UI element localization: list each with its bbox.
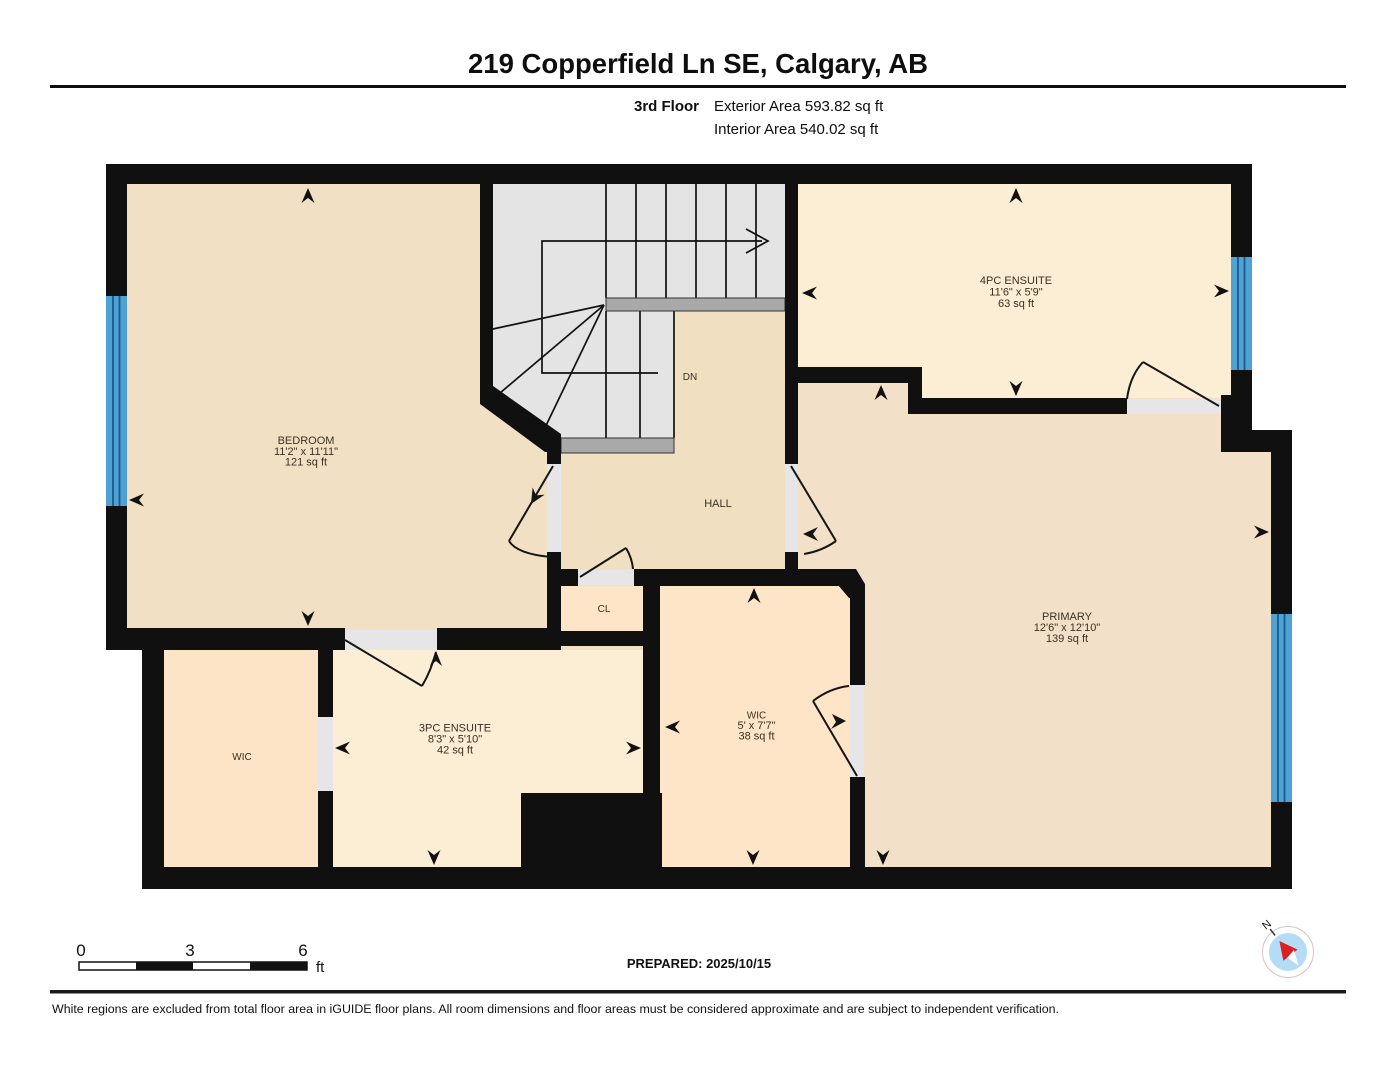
- svg-text:DN: DN: [683, 372, 697, 383]
- svg-text:139 sq ft: 139 sq ft: [1046, 633, 1088, 645]
- svg-text:42 sq ft: 42 sq ft: [437, 745, 473, 757]
- svg-text:0: 0: [76, 941, 85, 960]
- svg-text:63 sq ft: 63 sq ft: [998, 298, 1034, 310]
- svg-text:White regions are excluded fro: White regions are excluded from total fl…: [52, 1002, 1059, 1016]
- svg-text:WIC: WIC: [232, 752, 251, 763]
- svg-text:4PC ENSUITE: 4PC ENSUITE: [980, 275, 1052, 287]
- svg-text:HALL: HALL: [704, 498, 732, 510]
- svg-text:ft: ft: [316, 959, 325, 976]
- svg-text:38 sq ft: 38 sq ft: [738, 731, 774, 743]
- svg-text:6: 6: [298, 941, 307, 960]
- svg-text:PREPARED: 2025/10/15: PREPARED: 2025/10/15: [627, 956, 771, 971]
- svg-text:11'6" x 5'9": 11'6" x 5'9": [989, 287, 1042, 299]
- svg-text:CL: CL: [598, 604, 611, 615]
- svg-text:3: 3: [185, 941, 194, 960]
- svg-text:121 sq ft: 121 sq ft: [285, 457, 327, 469]
